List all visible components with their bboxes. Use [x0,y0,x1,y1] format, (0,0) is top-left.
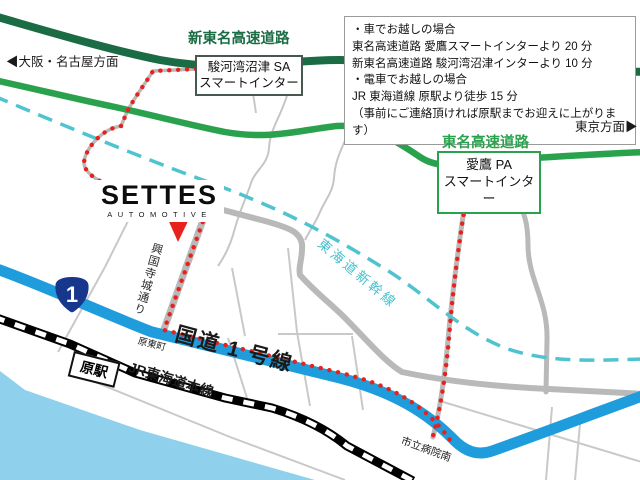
info-line: ・車でお越しの場合 [352,22,628,39]
settes-logo-subtitle: AUTOMOTIVE [101,210,218,219]
sea-water [0,371,315,480]
direction-tokyo-label: 東京方面▶ [575,116,638,135]
pa-smart-ic: スマートインター [440,174,538,208]
east-vertical-road [513,195,547,392]
tomei-expressway-label: 東名高速道路 [442,131,529,152]
sa-name: 駿河湾沼津 SA [198,59,300,75]
shin-tomei-expressway-label: 新東名高速道路 [188,27,290,48]
settes-logo-title: SETTES [101,182,218,209]
access-map: 1 新東名高速道路 ◀大阪・名古屋方面 ・車でお越しの場合 東名高速道路 愛鷹ス… [0,0,640,480]
settes-logo: SETTES AUTOMOTIVE [95,180,224,222]
info-line: 新東名高速道路 駿河湾沼津インターより 10 分 [352,56,628,73]
surugawan-numazu-sa-box: 駿河湾沼津 SA スマートインター [195,55,303,96]
pa-name: 愛鷹 PA [440,157,538,174]
info-line: ・電車でお越しの場合 [352,72,628,89]
ashitaka-pa-box: 愛鷹 PA スマートインター [437,151,541,214]
sa-smart-ic: スマートインター [198,75,300,91]
route-from-ashitaka-pa [433,206,465,436]
info-line: 東名高速道路 愛鷹スマートインターより 20 分 [352,39,628,56]
info-line: JR 東海道線 原駅より徒歩 15 分 [352,89,628,106]
direction-osaka-nagoya-label: ◀大阪・名古屋方面 [6,51,119,70]
route1-shield-number: 1 [66,282,78,307]
